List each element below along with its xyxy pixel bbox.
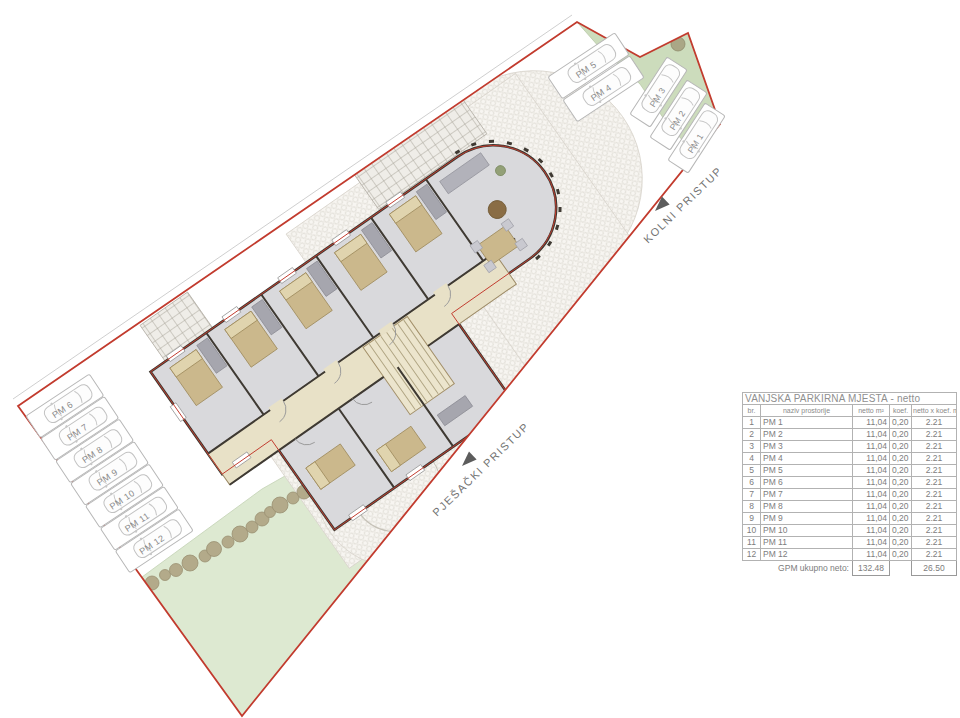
table-row: 3PM 3 11,040,20 2.21 [743,441,957,453]
table-row: 7PM 7 11,040,20 2.21 [743,489,957,501]
table-row: 12PM 12 11,040,20 2.21 [743,549,957,561]
table-row: 1PM 1 11,040,20 2.21 [743,417,957,429]
site-plan-page: PM 6 PM 7 PM 8 PM 9 PM 10 PM 11 PM 12 [0,0,960,718]
col-header-netto: netto m² [853,405,890,417]
footer-netto-total: 132.48 [853,561,890,576]
table-header-row: br. naziv prostorije netto m² koef. nett… [743,405,957,417]
table-row: 6PM 6 11,040,20 2.21 [743,477,957,489]
table-row: 2PM 2 11,040,20 2.21 [743,429,957,441]
floor-plan-svg: PM 6 PM 7 PM 8 PM 9 PM 10 PM 11 PM 12 [0,0,960,718]
col-header-result: netto x koef. m² [912,405,957,417]
table-row: 10PM 10 11,040,20 2.21 [743,525,957,537]
table-footer-row: GPM ukupno neto: 132.48 26.50 [743,561,957,576]
col-header-br: br. [743,405,761,417]
col-header-name: naziv prostorije [761,405,853,417]
table-row: 5PM 5 11,040,20 2.21 [743,465,957,477]
table-row: 8PM 8 11,040,20 2.21 [743,501,957,513]
col-header-koef: koef. [890,405,912,417]
parking-table: VANJSKA PARKIRNA MJESTA - netto br. nazi… [742,392,956,576]
table-row: 4PM 4 11,040,20 2.21 [743,453,957,465]
table-title: VANJSKA PARKIRNA MJESTA - netto [743,393,957,405]
table-row: 9PM 9 11,040,20 2.21 [743,513,957,525]
table-row: 11PM 11 11,040,20 2.21 [743,537,957,549]
footer-label: GPM ukupno neto: [743,561,853,576]
footer-result-total: 26.50 [912,561,957,576]
